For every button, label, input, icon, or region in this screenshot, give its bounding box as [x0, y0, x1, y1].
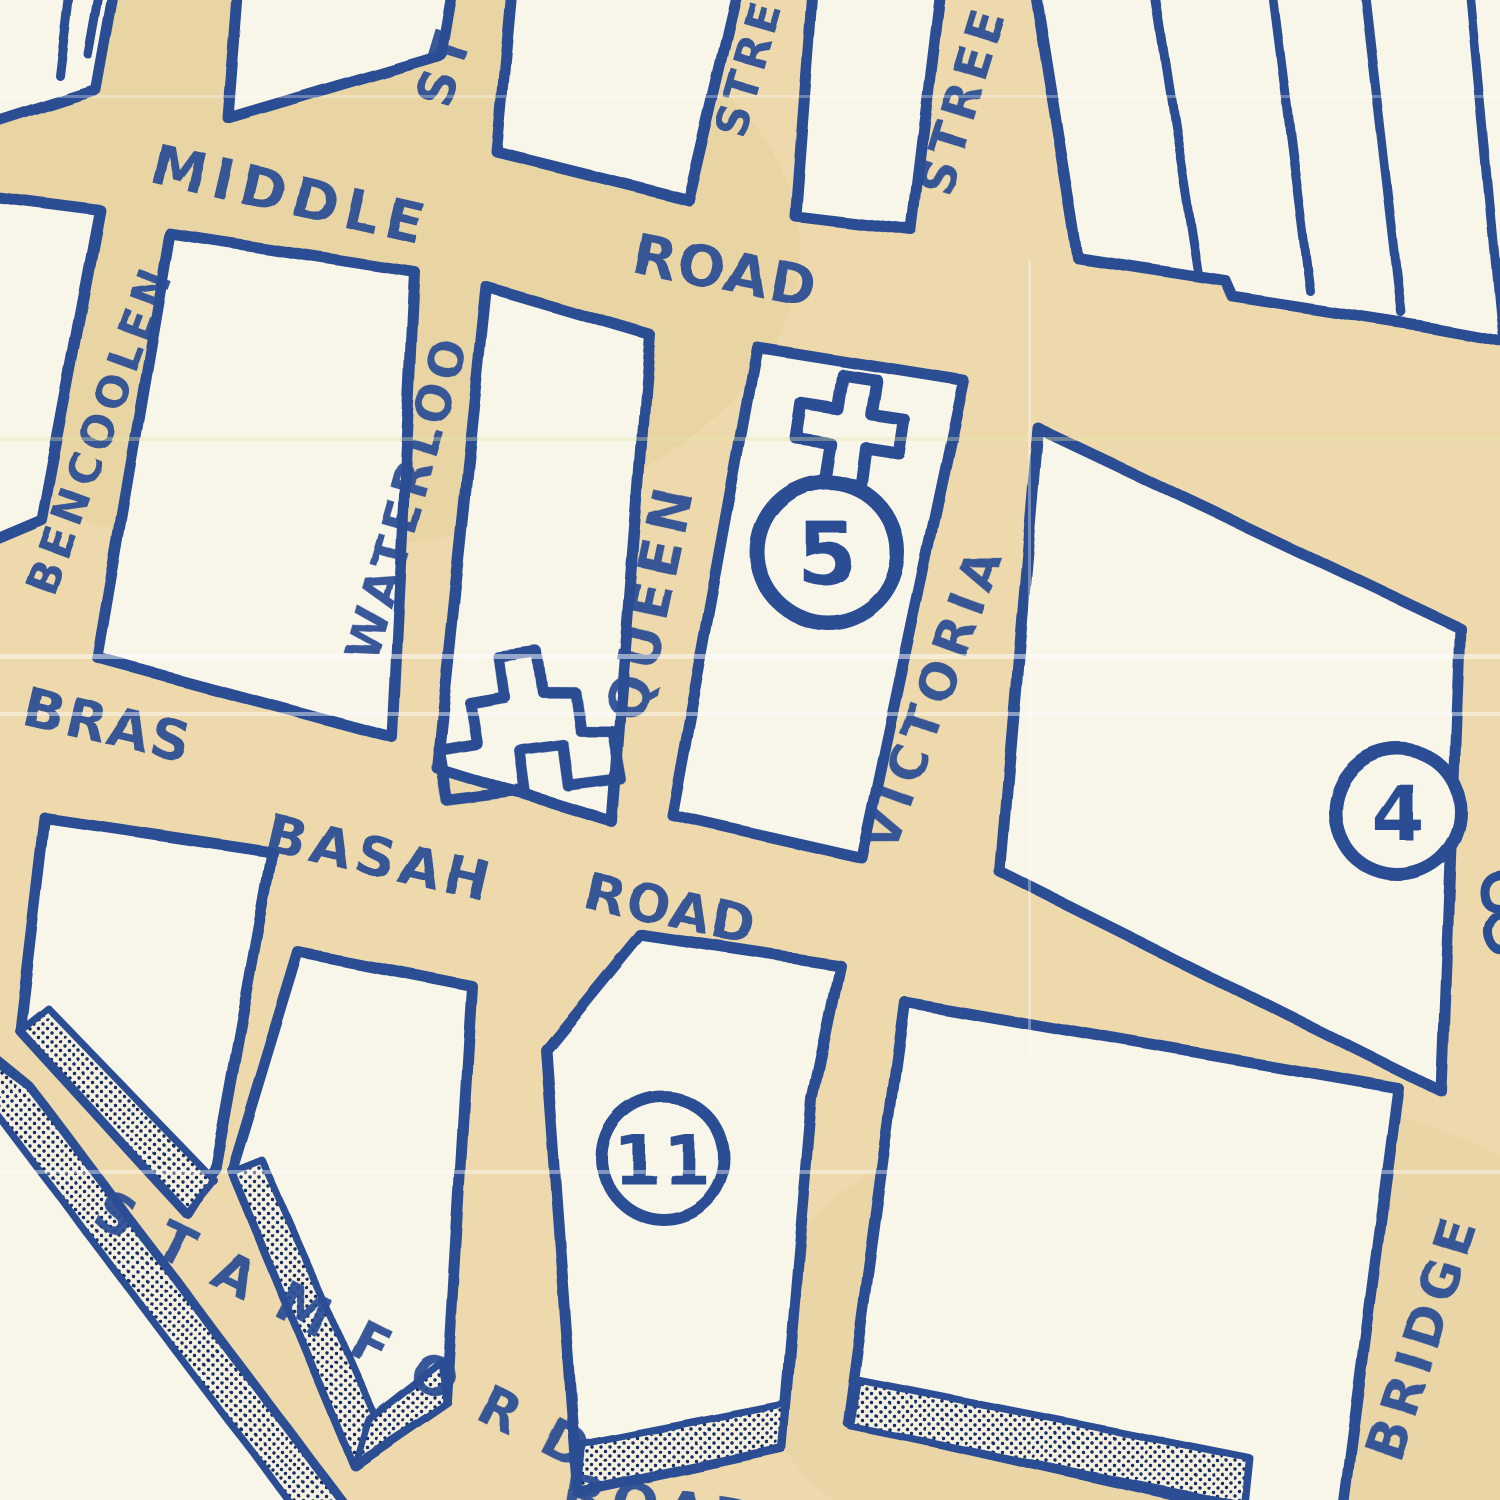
vintage-street-map: MIDDLE ROAD ST STRE STREE BENCOOLEN WATE…	[0, 0, 1500, 1500]
city-block	[795, 0, 941, 230]
marker-number-4: 4	[1372, 769, 1425, 858]
marker-number-11: 11	[614, 1122, 713, 1201]
map-canvas: MIDDLE ROAD ST STRE STREE BENCOOLEN WATE…	[0, 0, 1500, 1500]
marker-number-5: 5	[797, 505, 857, 605]
